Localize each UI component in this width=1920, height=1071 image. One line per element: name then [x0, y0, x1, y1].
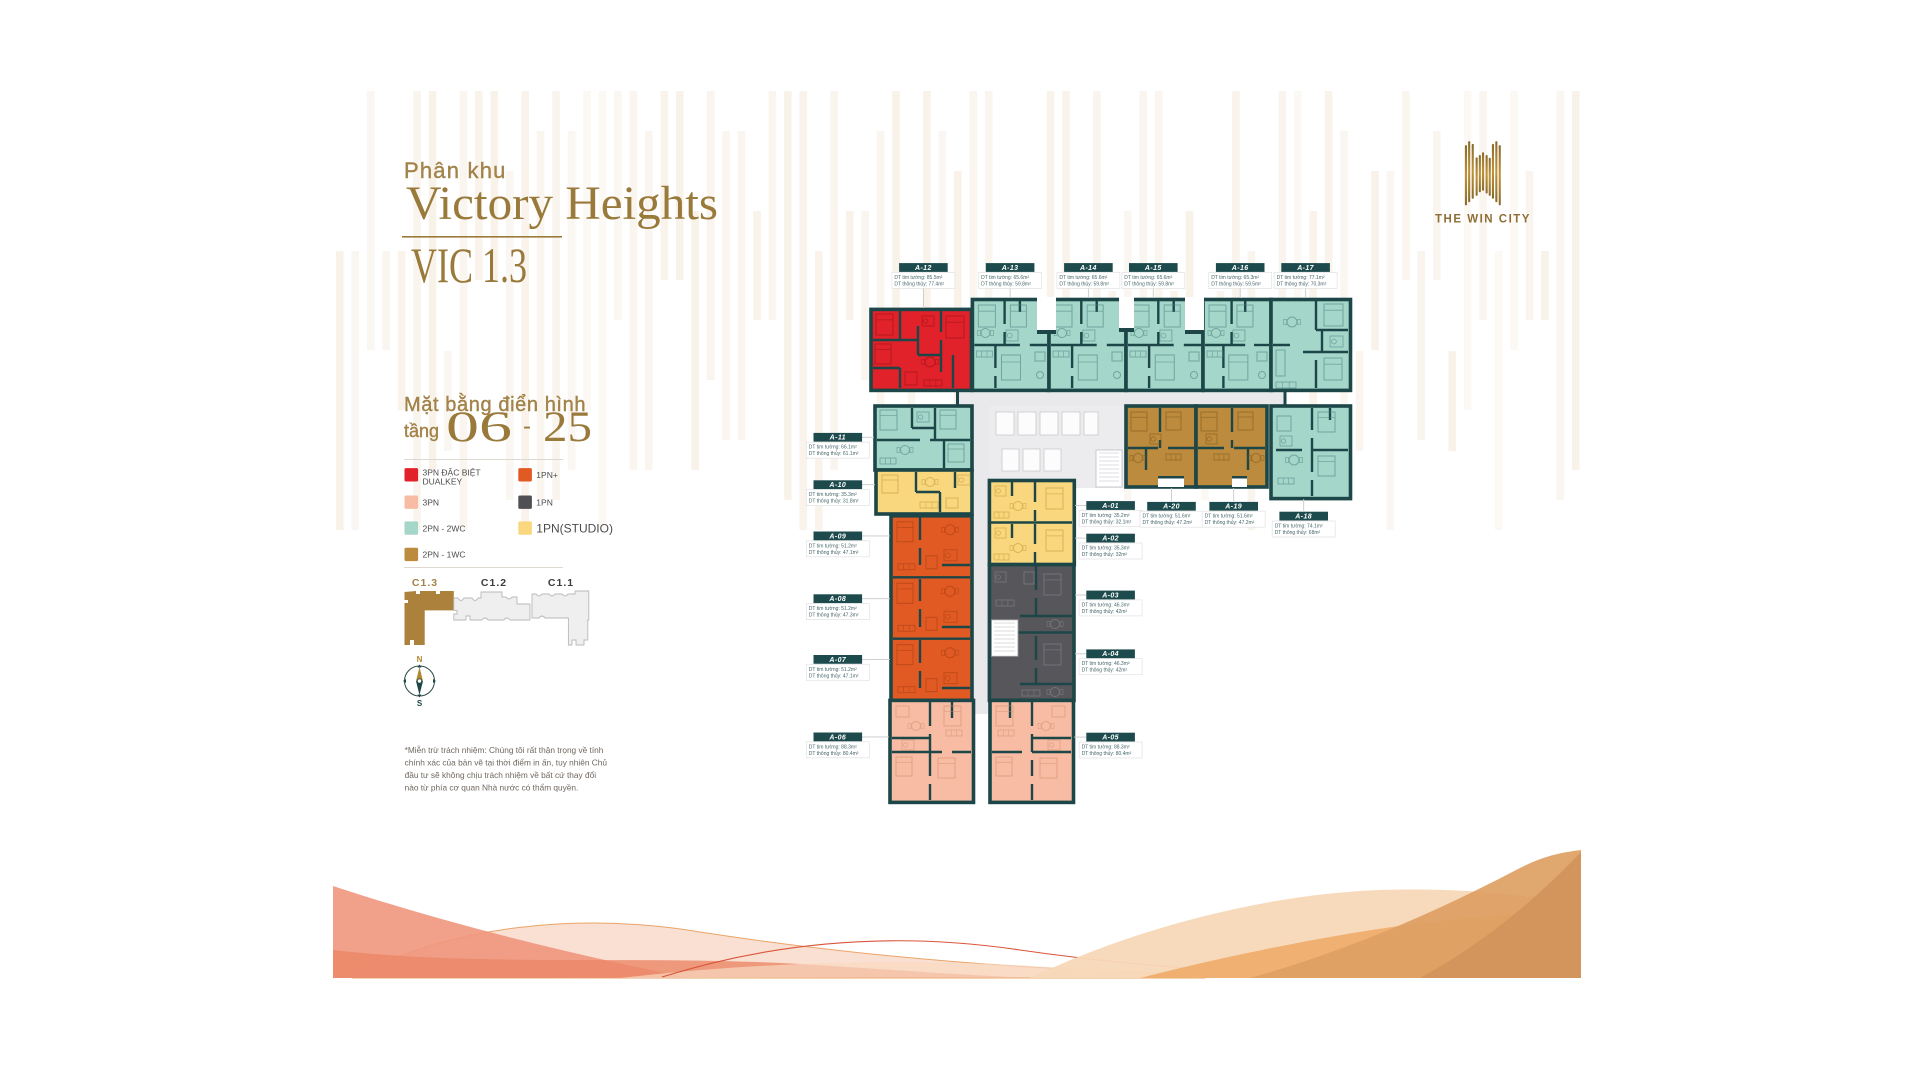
svg-text:C1.1: C1.1	[548, 577, 574, 589]
svg-text:DT thông thủy: 68m²: DT thông thủy: 68m²	[1275, 529, 1321, 536]
svg-text:DT tim tường: 51.6m²: DT tim tường: 51.6m²	[1205, 514, 1253, 520]
svg-text:DT tim tường: 85.5m²: DT tim tường: 85.5m²	[894, 275, 942, 281]
svg-text:3PN: 3PN	[423, 498, 440, 508]
svg-text:2PN - 1WC: 2PN - 1WC	[423, 550, 466, 560]
svg-text:DUALKEY: DUALKEY	[423, 477, 463, 487]
svg-text:DT tim tường: 35.3m²: DT tim tường: 35.3m²	[809, 492, 857, 498]
svg-text:DT tim tường: 51.6m²: DT tim tường: 51.6m²	[1143, 514, 1191, 520]
svg-text:DT thông thủy: 77.4m²: DT thông thủy: 77.4m²	[894, 280, 944, 287]
svg-text:DT thông thủy: 59.8m²: DT thông thủy: 59.8m²	[1059, 280, 1109, 287]
svg-text:DT thông thủy: 59.8m²: DT thông thủy: 59.8m²	[1124, 280, 1174, 287]
svg-text:DT tim tường: 35.2m²: DT tim tường: 35.2m²	[1082, 513, 1130, 519]
svg-text:A-13: A-13	[1001, 265, 1019, 272]
svg-text:*Miễn trừ trách nhiệm: Chúng t: *Miễn trừ trách nhiệm: Chúng tôi rất thậ…	[405, 745, 604, 755]
svg-text:S: S	[417, 699, 423, 708]
svg-text:1PN+: 1PN+	[536, 470, 558, 480]
svg-text:C1.2: C1.2	[481, 577, 507, 589]
svg-text:DT thông thủy: 47.3m²: DT thông thủy: 47.3m²	[809, 612, 859, 619]
svg-text:DT tim tường: 88.3m²: DT tim tường: 88.3m²	[809, 744, 857, 750]
svg-text:A-12: A-12	[914, 265, 932, 272]
svg-text:Victory Heights: Victory Heights	[406, 177, 718, 230]
svg-text:DT thông thủy: 42m²: DT thông thủy: 42m²	[1082, 667, 1128, 674]
svg-text:DT tim tường: 51.2m²: DT tim tường: 51.2m²	[809, 606, 857, 612]
svg-text:DT tim tường: 51.2m²: DT tim tường: 51.2m²	[809, 667, 857, 673]
svg-text:A-11: A-11	[829, 435, 846, 442]
svg-text:C1.3: C1.3	[412, 577, 438, 589]
svg-text:1PN: 1PN	[536, 498, 553, 508]
svg-text:DT thông thủy: 70.3m²: DT thông thủy: 70.3m²	[1277, 280, 1327, 287]
svg-text:A-10: A-10	[828, 482, 846, 489]
svg-text:2PN - 2WC: 2PN - 2WC	[423, 523, 466, 533]
svg-text:chính xác của bản vẽ tại thời: chính xác của bản vẽ tại thời điểm in ấn…	[405, 758, 608, 768]
svg-text:DT thông thủy: 59.5m²: DT thông thủy: 59.5m²	[1211, 280, 1261, 287]
svg-text:A-07: A-07	[828, 657, 846, 664]
svg-text:-: -	[523, 413, 531, 440]
svg-text:tầng: tầng	[404, 421, 439, 441]
svg-text:DT thông thủy: 80.4m²: DT thông thủy: 80.4m²	[809, 750, 859, 757]
svg-text:A-03: A-03	[1101, 592, 1119, 599]
svg-text:DT tim tường: 74.1m²: DT tim tường: 74.1m²	[1275, 524, 1323, 530]
svg-text:1PN(STUDIO): 1PN(STUDIO)	[536, 521, 613, 535]
svg-text:A-16: A-16	[1231, 265, 1249, 272]
svg-text:DT thông thủy: 32.1m²: DT thông thủy: 32.1m²	[1082, 518, 1132, 525]
svg-text:DT thông thủy: 61.1m²: DT thông thủy: 61.1m²	[809, 450, 859, 457]
svg-text:DT tim tường: 65.3m²: DT tim tường: 65.3m²	[1211, 275, 1259, 281]
svg-text:DT tim tường: 65.6m²: DT tim tường: 65.6m²	[1124, 275, 1172, 281]
svg-text:A-20: A-20	[1162, 504, 1180, 511]
svg-text:A-06: A-06	[828, 734, 846, 741]
svg-text:25: 25	[543, 404, 592, 451]
svg-text:đầu tư sẽ không chịu trách nhi: đầu tư sẽ không chịu trách nhiệm về bất …	[405, 770, 597, 780]
svg-text:A-05: A-05	[1101, 735, 1119, 742]
svg-text:DT tim tường: 46.3m²: DT tim tường: 46.3m²	[1082, 661, 1130, 667]
svg-text:A-08: A-08	[828, 596, 846, 603]
svg-text:DT thông thủy: 47.1m²: DT thông thủy: 47.1m²	[809, 549, 859, 556]
svg-text:A-18: A-18	[1294, 514, 1312, 521]
svg-text:DT thông thủy: 32m²: DT thông thủy: 32m²	[1082, 551, 1128, 558]
svg-text:THE WIN CITY: THE WIN CITY	[1435, 214, 1531, 226]
svg-text:A-15: A-15	[1144, 265, 1162, 272]
svg-text:DT tim tường: 35.3m²: DT tim tường: 35.3m²	[1082, 546, 1130, 552]
svg-text:DT tim tường: 51.2m²: DT tim tường: 51.2m²	[809, 543, 857, 549]
svg-text:A-14: A-14	[1079, 265, 1097, 272]
svg-text:VIC 1.3: VIC 1.3	[411, 237, 527, 293]
svg-text:DT thông thủy: 47.1m²: DT thông thủy: 47.1m²	[809, 672, 859, 679]
svg-text:A-19: A-19	[1224, 504, 1242, 511]
svg-text:nào từ phía cơ quan Nhà nước c: nào từ phía cơ quan Nhà nước có thẩm quy…	[405, 783, 579, 793]
svg-text:A-09: A-09	[828, 533, 846, 540]
svg-text:A-17: A-17	[1296, 265, 1314, 272]
svg-text:DT thông thủy: 47.2m²: DT thông thủy: 47.2m²	[1205, 519, 1255, 526]
svg-text:06: 06	[446, 404, 512, 451]
svg-text:DT tim tường: 88.3m²: DT tim tường: 88.3m²	[1082, 745, 1130, 751]
svg-text:DT tim tường: 77.1m²: DT tim tường: 77.1m²	[1277, 275, 1325, 281]
svg-text:N: N	[417, 655, 423, 664]
svg-text:DT tim tường: 66.1m²: DT tim tường: 66.1m²	[809, 445, 857, 451]
svg-text:DT thông thủy: 59.8m²: DT thông thủy: 59.8m²	[981, 280, 1031, 287]
svg-text:DT thông thủy: 31.8m²: DT thông thủy: 31.8m²	[809, 498, 859, 505]
svg-text:DT thông thủy: 80.4m²: DT thông thủy: 80.4m²	[1082, 750, 1132, 757]
svg-text:DT thông thủy: 47.2m²: DT thông thủy: 47.2m²	[1143, 519, 1193, 526]
svg-text:A-01: A-01	[1101, 503, 1119, 510]
svg-text:A-02: A-02	[1101, 536, 1119, 543]
svg-text:A-04: A-04	[1101, 651, 1119, 658]
svg-text:DT tim tường: 65.6m²: DT tim tường: 65.6m²	[981, 275, 1029, 281]
svg-text:DT thông thủy: 42m²: DT thông thủy: 42m²	[1082, 608, 1128, 615]
svg-text:DT tim tường: 46.3m²: DT tim tường: 46.3m²	[1082, 602, 1130, 608]
svg-text:DT tim tường: 65.6m²: DT tim tường: 65.6m²	[1059, 275, 1107, 281]
